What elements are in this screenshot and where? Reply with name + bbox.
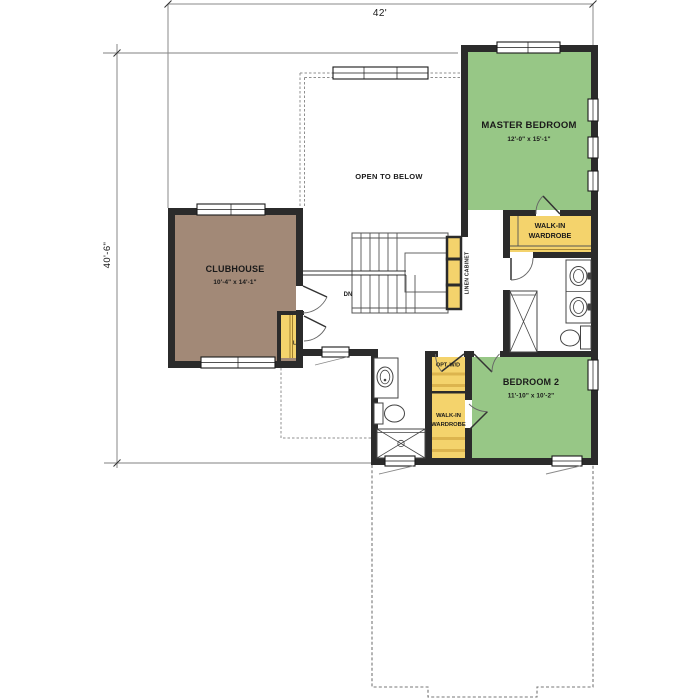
door-master-bath	[511, 258, 533, 280]
window-clubhouse-top	[197, 204, 265, 215]
toilet-tank	[374, 403, 383, 424]
door-clubhouse	[303, 286, 327, 313]
dimension-height-label: 40'-6"	[102, 242, 113, 269]
floor-plan: 42' 40'-6" OPEN TO BELOW DN	[0, 0, 700, 700]
opt-wd-stripe	[432, 384, 465, 387]
wardrobe2-label-2: WARDROBE	[431, 422, 466, 428]
wardrobe2-stripe	[432, 437, 465, 440]
wardrobe2-stripe	[432, 449, 465, 452]
window-sill-mark	[546, 466, 580, 474]
toilet-tank	[581, 326, 592, 349]
linen-cabinet-label: LINEN CABINET	[465, 251, 471, 294]
window-open-to-below	[333, 67, 428, 79]
window-master-right-3	[588, 171, 598, 191]
window-master-top	[497, 42, 560, 53]
master-wardrobe-label-1: WALK-IN	[535, 221, 566, 230]
linen-closet-label: L	[293, 341, 296, 347]
wardrobe2-label-1: WALK-IN	[436, 413, 461, 419]
lower-floor-outline	[372, 465, 593, 697]
linen-cabinet: LINEN CABINET	[446, 237, 471, 309]
door-leaf	[304, 316, 326, 327]
stairs-down-label: DN	[344, 292, 353, 298]
toilet-bowl	[385, 405, 405, 422]
door-swing-arc	[304, 327, 326, 341]
hall-bathroom	[374, 358, 425, 458]
master-bedroom-floor	[468, 52, 591, 210]
window-clubhouse-bottom	[201, 357, 275, 368]
closet-wall	[277, 311, 281, 361]
stairs: DN	[302, 233, 448, 313]
clubhouse-size: 10'-4" x 14'-1"	[213, 279, 256, 286]
linen-cabinet-box	[447, 237, 461, 309]
window-master-right-2	[588, 137, 598, 158]
bedroom2-size: 11'-10" x 10'-2"	[508, 393, 555, 400]
opt-wd-label: OPT. W/D	[436, 363, 460, 369]
bedroom2-label: BEDROOM 2	[503, 377, 559, 387]
window-sill-mark	[315, 357, 347, 365]
linen-cabinet-divider	[446, 258, 462, 261]
dimension-width-label: 42'	[373, 8, 387, 19]
master-bedroom-size: 12'-0" x 15'-1"	[507, 136, 550, 143]
open-to-below-boundary	[300, 73, 461, 208]
faucet	[588, 273, 592, 280]
stairs-outline	[352, 233, 448, 313]
roof-edge-dashed	[281, 368, 371, 438]
open-to-below: OPEN TO BELOW	[300, 73, 461, 208]
dimension-left: 40'-6"	[102, 50, 121, 467]
master-wardrobe-label-2: WARDROBE	[529, 231, 572, 240]
lower-floor-dashed-path	[372, 465, 593, 697]
opt-wd-stripe	[432, 373, 465, 376]
linen-cabinet-divider	[446, 284, 462, 287]
sink-drain	[384, 379, 387, 382]
bedroom2-floor	[472, 357, 591, 458]
master-bedroom-label: MASTER BEDROOM	[481, 120, 576, 131]
window-master-right-1	[588, 99, 598, 121]
master-bathroom	[510, 260, 591, 352]
door-leaf	[303, 286, 327, 297]
window-sill-mark	[379, 466, 413, 474]
opt-wd-divider	[432, 391, 465, 394]
window-bedroom2-right	[588, 360, 598, 390]
faucet	[588, 304, 592, 311]
door-linen-closet	[304, 316, 326, 341]
door-swing-arc	[303, 297, 327, 313]
clubhouse-label: CLUBHOUSE	[206, 264, 265, 274]
door-swing-arc	[511, 258, 533, 280]
toilet-bowl	[561, 330, 580, 346]
open-to-below-label: OPEN TO BELOW	[355, 172, 423, 181]
